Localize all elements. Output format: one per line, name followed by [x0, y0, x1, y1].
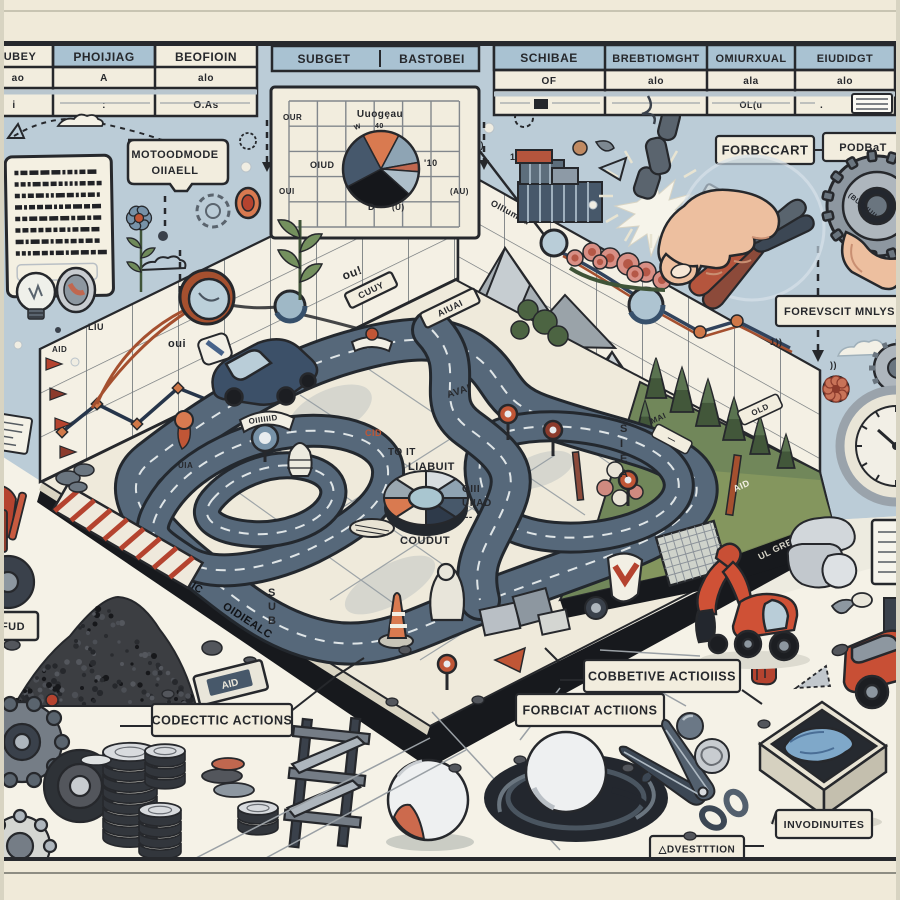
svg-text:FORBCCART: FORBCCART	[722, 143, 809, 158]
svg-text:alo: alo	[198, 73, 214, 84]
svg-text:FOREVSCIT MNLYS: FOREVSCIT MNLYS	[784, 306, 895, 318]
svg-text:I: I	[620, 438, 624, 450]
svg-text:BASTOBEI: BASTOBEI	[399, 52, 465, 66]
svg-text:alo: alo	[837, 76, 853, 87]
svg-text:LIU: LIU	[88, 322, 104, 332]
svg-text:.: .	[820, 100, 823, 111]
svg-text:UIA: UIA	[178, 461, 193, 470]
svg-text:UIIAD: UIIAD	[462, 498, 492, 509]
svg-text:BREBTIOMGHT: BREBTIOMGHT	[612, 53, 699, 65]
svg-text:EIUDIDGT: EIUDIDGT	[817, 53, 874, 65]
svg-text:(AU): (AU)	[450, 187, 469, 196]
svg-text:40: 40	[375, 123, 384, 130]
svg-text:alo: alo	[648, 76, 664, 87]
svg-text:TO IT: TO IT	[388, 447, 416, 458]
svg-text:AID: AID	[52, 345, 67, 354]
svg-text:i: i	[12, 100, 15, 111]
svg-text:COBBETIVE ACTIOIISS: COBBETIVE ACTIOIISS	[588, 670, 736, 684]
svg-text:1)): 1))	[770, 337, 783, 347]
svg-text:OMIURXUAL: OMIURXUAL	[715, 53, 786, 65]
svg-text::: :	[102, 100, 106, 111]
svg-text:COUDUT: COUDUT	[400, 535, 450, 547]
svg-text:△DVESTTTION: △DVESTTTION	[658, 845, 736, 856]
svg-text:S: S	[620, 423, 628, 435]
svg-text:LIABUIT: LIABUIT	[408, 461, 455, 473]
svg-text:E: E	[620, 453, 628, 465]
svg-text:OUI: OUI	[279, 187, 295, 196]
svg-text:FORBCIAT ACTIIONS: FORBCIAT ACTIIONS	[523, 704, 658, 718]
svg-text:A: A	[620, 468, 628, 480]
svg-text:'10: '10	[424, 158, 438, 168]
svg-text:B: B	[268, 615, 276, 627]
svg-text:ala: ala	[743, 76, 758, 87]
svg-text:OL(u: OL(u	[740, 100, 763, 110]
svg-text:OF: OF	[542, 76, 557, 87]
svg-text:A: A	[100, 73, 108, 84]
svg-text:OIIAELL: OIIAELL	[152, 165, 199, 177]
svg-text:OIII: OIII	[462, 484, 480, 495]
svg-text:OIUD: OIUD	[310, 160, 335, 170]
svg-text:CID: CID	[365, 428, 382, 438]
svg-text:BEOFIOIN: BEOFIOIN	[175, 50, 237, 64]
svg-text:S: S	[268, 587, 276, 599]
svg-text:MOTOODMODE: MOTOODMODE	[131, 149, 218, 161]
svg-text:FUD: FUD	[1, 621, 25, 633]
svg-text:PHOIJIAG: PHOIJIAG	[73, 50, 134, 64]
svg-text:D: D	[368, 202, 375, 212]
svg-text:U: U	[268, 601, 276, 613]
svg-text:O.As: O.As	[193, 100, 218, 111]
svg-text:SCHIBAE: SCHIBAE	[520, 51, 578, 65]
svg-text:oui: oui	[168, 338, 186, 350]
svg-text:INVODINUITES: INVODINUITES	[784, 819, 865, 831]
svg-text:(U): (U)	[392, 203, 405, 212]
svg-text:)): ))	[830, 360, 837, 370]
svg-text:SUBGET: SUBGET	[297, 52, 350, 66]
svg-text:OUR: OUR	[283, 113, 302, 122]
svg-text:UBΕY: UBΕY	[4, 51, 37, 63]
svg-text:PODBаT: PODBаT	[839, 142, 887, 154]
svg-text:ao: ao	[12, 73, 25, 84]
svg-text:--: --	[465, 512, 473, 523]
svg-text:CODECTTIC ACTIONS: CODECTTIC ACTIONS	[152, 714, 293, 728]
svg-text:Uuogȩau: Uuogȩau	[357, 109, 403, 120]
